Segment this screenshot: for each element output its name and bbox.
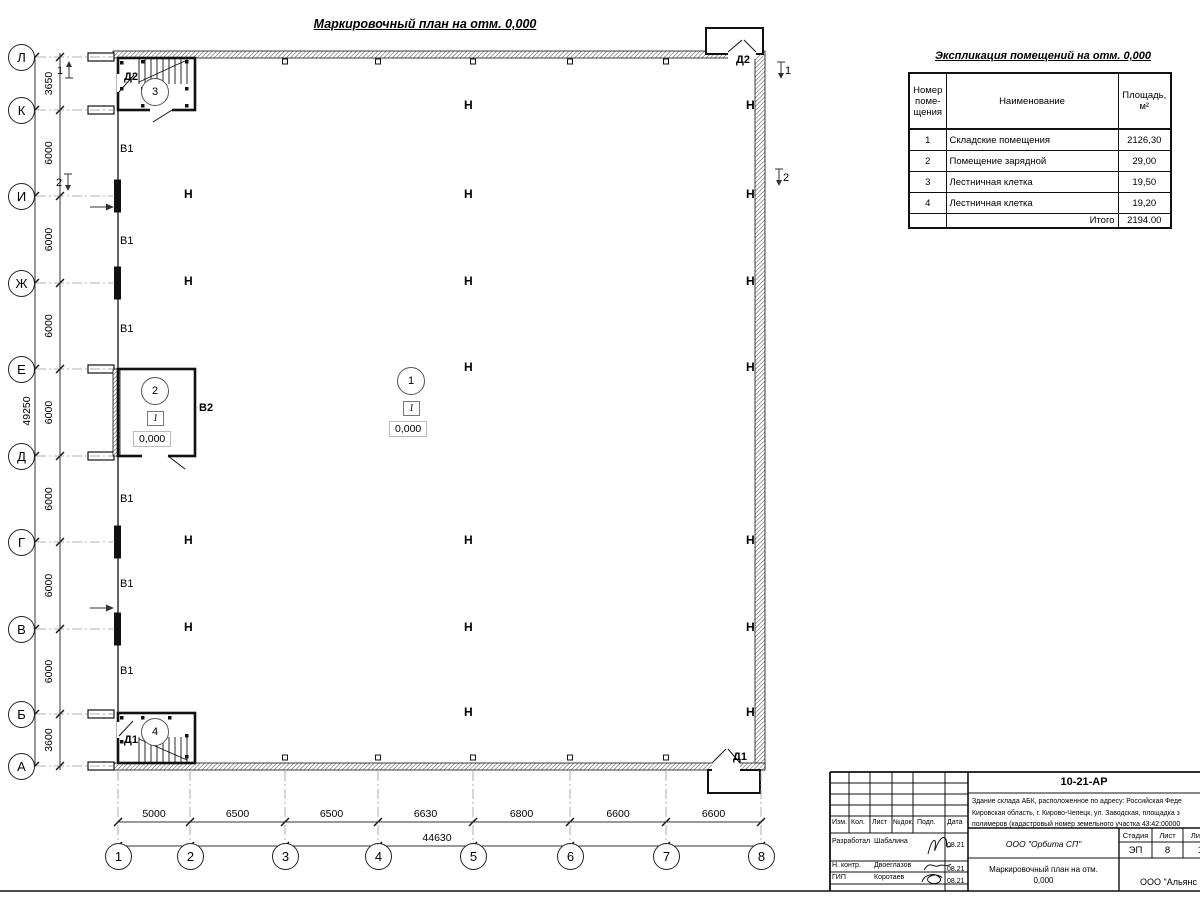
room-schedule-row: 3Лестничная клетка19,50 [909, 172, 1171, 193]
steel-column-mark: Н [464, 98, 473, 112]
total-value: 2194.00 [1118, 214, 1171, 229]
v-dim-label: 6000 [43, 141, 55, 165]
room-schedule-cell: 3 [909, 172, 946, 193]
room-schedule-cell: Лестничная клетка [946, 193, 1118, 214]
row-axis-Г: Г [8, 529, 35, 556]
steel-column-mark: Н [184, 274, 193, 288]
room-schedule-cell: 2 [909, 151, 946, 172]
entrance-arrows [90, 204, 114, 612]
door-label-Д2: Д2 [736, 54, 750, 66]
room-schedule-cell: 1 [909, 129, 946, 151]
v-dim-label: 6000 [43, 574, 55, 598]
tb-person: Коротаев [874, 874, 904, 881]
h-dim-label: 6600 [606, 808, 630, 820]
gate-label-В1: В1 [120, 578, 133, 590]
section-mark-1: 1 [785, 65, 791, 77]
stage-value: ЭП [1119, 845, 1152, 856]
tb-date: 08.21 [947, 842, 965, 849]
col-axis-8: 8 [748, 843, 775, 870]
section-mark-arrow [776, 180, 782, 186]
row-axis-А: А [8, 753, 35, 780]
col-axis-2: 2 [177, 843, 204, 870]
tb-role: Н. контр. [832, 862, 861, 869]
col-axis-1: 1 [105, 843, 132, 870]
sheets-label: Листов [1183, 831, 1200, 840]
row-axis-Е: Е [8, 356, 35, 383]
section-mark-1: 1 [57, 65, 63, 77]
steel-column-mark: Н [746, 533, 755, 547]
room-type-mark: 1 [147, 411, 164, 426]
sheet-label: Лист [1152, 831, 1183, 840]
steel-column-mark: Н [184, 187, 193, 201]
door-label-Д1: Д1 [733, 751, 747, 763]
tb-person: Шабалина [874, 838, 908, 845]
gate-label-В1: В1 [120, 665, 133, 677]
stage-label: Стадия [1119, 831, 1152, 840]
col-header-number: Номер поме- щения [909, 73, 946, 129]
row-axis-Б: Б [8, 701, 35, 728]
v-total-label: 49250 [21, 396, 33, 425]
steel-column-mark: Н [464, 533, 473, 547]
room-schedule-table: Номер поме- щения Наименование Площадь, … [908, 72, 1172, 229]
tb-header-Дата: Дата [947, 819, 963, 826]
h-dim-label: 6500 [320, 808, 344, 820]
room-schedule-cell: Помещение зарядной [946, 151, 1118, 172]
room-tag-4: 4 [141, 718, 169, 746]
section-mark-arrow [778, 73, 784, 79]
steel-column-mark: Н [464, 274, 473, 288]
v-dim-label: 3600 [43, 728, 55, 752]
project-description: Здание склада АБК, расположенное по адре… [972, 796, 1200, 831]
row-axis-В: В [8, 616, 35, 643]
section-mark-arrow [66, 61, 72, 67]
tb-header-Изм.: Изм. [832, 819, 847, 826]
gate-label-В1: В1 [120, 143, 133, 155]
plan-title: Маркировочный план на отм. 0,000 [290, 17, 560, 31]
steel-column-mark: Н [746, 98, 755, 112]
steel-column-mark: Н [464, 187, 473, 201]
room-schedule-cell: 19,20 [1118, 193, 1171, 214]
drawing-title: Маркировочный план на отм. 0,000 [968, 864, 1119, 886]
h-dim-label: 6630 [414, 808, 438, 820]
steel-column-mark: Н [184, 620, 193, 634]
steel-column-mark: Н [746, 705, 755, 719]
steel-column-mark: Н [184, 533, 193, 547]
vestibule-top-right [706, 28, 763, 59]
section-mark-2: 2 [783, 172, 789, 184]
section-mark-2: 2 [56, 177, 62, 189]
h-dim-label: 6500 [226, 808, 250, 820]
steel-column-mark: Н [464, 620, 473, 634]
tb-header-Лист: Лист [872, 819, 887, 826]
design-org: ООО "Орбита СП" [968, 839, 1119, 849]
v-dim-label: 3650 [43, 72, 55, 96]
tb-date: 08.21 [947, 878, 965, 885]
door-label-Д2: Д2 [124, 71, 138, 83]
room-tag-2: 2 [141, 377, 169, 405]
document-number: 10-21-АР [968, 776, 1200, 788]
room-schedule-cell: 29,00 [1118, 151, 1171, 172]
room-schedule: Экспликация помещений на отм. 0,000 Номе… [900, 50, 1186, 229]
steel-column-mark: Н [746, 360, 755, 374]
col-axis-5: 5 [460, 843, 487, 870]
h-total-label: 44630 [422, 832, 451, 844]
col-header-name: Наименование [946, 73, 1118, 129]
col-axis-3: 3 [272, 843, 299, 870]
total-label: Итого [946, 214, 1118, 229]
row-axis-К: К [8, 97, 35, 124]
v-dim-label: 6000 [43, 228, 55, 252]
col-axis-6: 6 [557, 843, 584, 870]
room-schedule-row: 4Лестничная клетка19,20 [909, 193, 1171, 214]
door-label-Д1: Д1 [124, 734, 138, 746]
tb-header-Подп.: Подп. [917, 819, 936, 826]
row-axis-Л: Л [8, 44, 35, 71]
gate-label-В1: В1 [120, 235, 133, 247]
tb-role: ГИП [832, 874, 846, 881]
room-level-mark: 0,000 [389, 421, 427, 437]
room-tag-1: 1 [397, 367, 425, 395]
building-walls [88, 51, 765, 770]
v-dim-label: 6000 [43, 314, 55, 338]
tb-date: 08.21 [947, 866, 965, 873]
v-dim-label: 6000 [43, 487, 55, 511]
row-axis-И: И [8, 183, 35, 210]
gate-label-В1: В1 [120, 493, 133, 505]
section-mark-arrow [65, 185, 71, 191]
v-dim-label: 6000 [43, 401, 55, 425]
room-schedule-cell: Складские помещения [946, 129, 1118, 151]
row-axis-Ж: Ж [8, 270, 35, 297]
room-schedule-row: 2Помещение зарядной29,00 [909, 151, 1171, 172]
tb-person: Двоеглазов [874, 862, 911, 869]
company-name: ООО "Альянс [1140, 877, 1197, 887]
room-schedule-row: 1Складские помещения2126,30 [909, 129, 1171, 151]
h-dim-label: 5000 [142, 808, 166, 820]
steel-column-mark: Н [746, 274, 755, 288]
gate-label-В1: В1 [120, 323, 133, 335]
room-type-mark: 1 [403, 401, 420, 416]
col-header-area: Площадь, м² [1118, 73, 1171, 129]
v-dim-label: 6000 [43, 660, 55, 684]
room-schedule-cell: 19,50 [1118, 172, 1171, 193]
room-schedule-cell: 4 [909, 193, 946, 214]
col-axis-4: 4 [365, 843, 392, 870]
sheet-value: 8 [1152, 845, 1183, 856]
steel-column-mark: Н [464, 360, 473, 374]
sheets-value: 17 [1183, 845, 1200, 856]
steel-column-mark: Н [746, 187, 755, 201]
room-schedule-title: Экспликация помещений на отм. 0,000 [900, 50, 1186, 62]
room-tag-3: 3 [141, 78, 169, 106]
room-schedule-cell: Лестничная клетка [946, 172, 1118, 193]
wall-tick-squares [283, 59, 669, 760]
room-schedule-cell: 2126,30 [1118, 129, 1171, 151]
steel-column-mark: Н [746, 620, 755, 634]
generated-dimension-layer: 3650600060006000600060006000600036004925… [21, 53, 785, 850]
door-label-В2: В2 [199, 402, 213, 414]
h-dim-label: 6600 [702, 808, 726, 820]
steel-column-mark: Н [464, 705, 473, 719]
drawing-sheet: 3650600060006000600060006000600036004925… [0, 0, 1200, 900]
col-axis-7: 7 [653, 843, 680, 870]
tb-header-Кол.: Кол. [851, 819, 865, 826]
tb-role: Разработал [832, 838, 870, 845]
tb-header-№док.: №док. [893, 819, 914, 826]
h-dim-label: 6800 [510, 808, 534, 820]
room-level-mark: 0,000 [133, 431, 171, 447]
row-axis-Д: Д [8, 443, 35, 470]
